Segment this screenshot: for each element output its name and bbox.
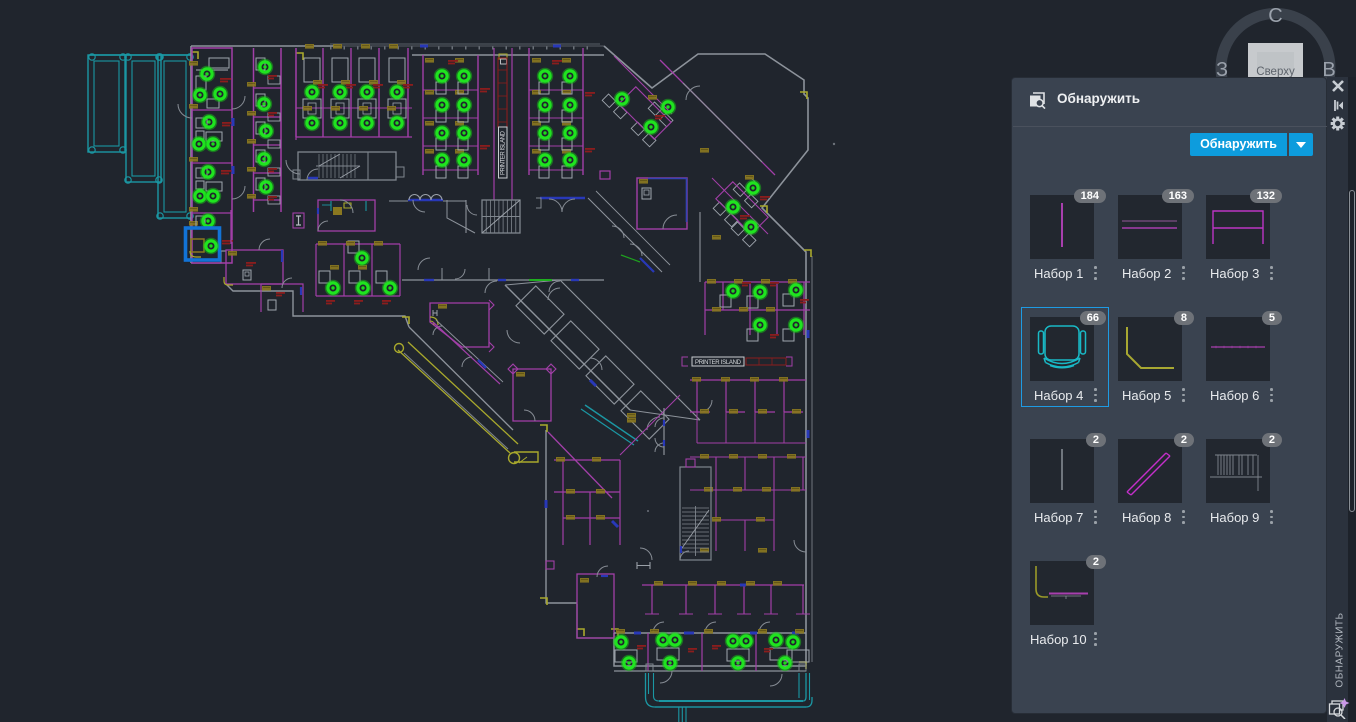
svg-text:PRINTER ISLAND: PRINTER ISLAND bbox=[695, 360, 742, 366]
svg-text:PRINTER ISLAND: PRINTER ISLAND bbox=[501, 130, 507, 175]
svg-text:С: С bbox=[1268, 5, 1282, 27]
